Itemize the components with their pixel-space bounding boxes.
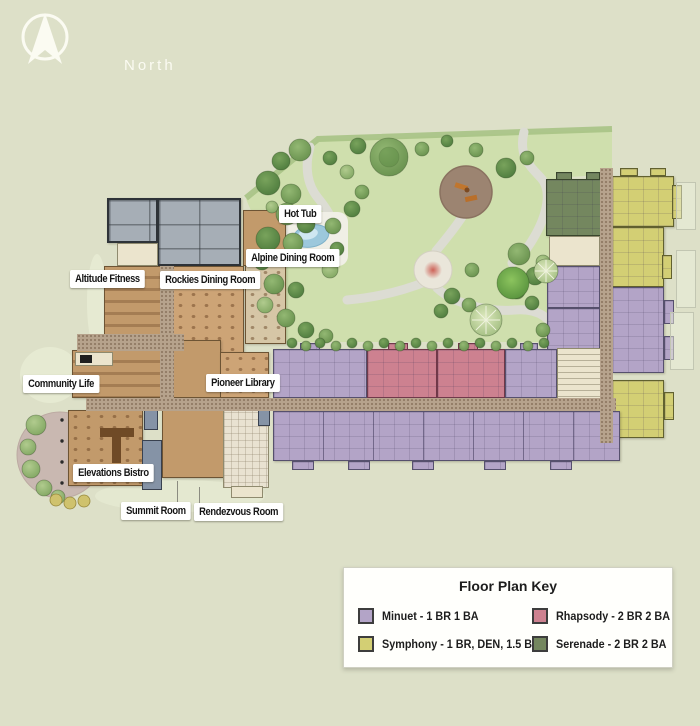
legend-entry-label: Minuet - 1 BR 1 BA	[382, 609, 479, 623]
room-label-rendezvous-room: Rendezvous Room	[194, 503, 283, 521]
legend-entry-label: Serenade - 2 BR 2 BA	[556, 637, 666, 651]
legend-entry-label: Symphony - 1 BR, DEN, 1.5 BA	[382, 637, 540, 651]
terrace-yellow-shrubs	[50, 494, 90, 509]
legend-entry-rhapsody: Rhapsody - 2 BR 2 BA	[532, 608, 683, 624]
label-leader-line	[177, 481, 178, 504]
symphony-color-swatch	[358, 636, 374, 652]
terrace-shrubs	[20, 415, 65, 504]
legend-entry-minuet: Minuet - 1 BR 1 BA	[358, 608, 489, 624]
floor-plan-key: Floor Plan Key Minuet - 1 BR 1 BA Rhapso…	[343, 567, 673, 668]
trees-group	[20, 135, 558, 509]
room-label-pioneer-library: Pioneer Library	[206, 374, 280, 392]
serenade-color-swatch	[532, 636, 548, 652]
room-label-community-life: Community Life	[23, 375, 99, 393]
legend-entry-symphony: Symphony - 1 BR, DEN, 1.5 BA	[358, 636, 557, 652]
rhapsody-color-swatch	[532, 608, 548, 624]
legend-entry-serenade: Serenade - 2 BR 2 BA	[532, 636, 679, 652]
minuet-color-swatch	[358, 608, 374, 624]
room-label-summit-room: Summit Room	[121, 502, 191, 520]
site-plan-canvas: Hot Tub Alpine Dining Room Altitude Fitn…	[0, 0, 700, 726]
north-label: North	[124, 57, 176, 74]
room-label-altitude-fitness: Altitude Fitness	[70, 270, 145, 288]
legend-title: Floor Plan Key	[344, 578, 672, 594]
legend-entry-label: Rhapsody - 2 BR 2 BA	[556, 609, 670, 623]
room-label-elevations-bistro: Elevations Bistro	[73, 464, 154, 482]
north-compass-icon	[0, 0, 110, 78]
room-label-alpine-dining: Alpine Dining Room	[246, 249, 339, 267]
room-label-hot-tub: Hot Tub	[279, 205, 321, 223]
room-label-rockies-dining: Rockies Dining Room	[160, 271, 260, 289]
